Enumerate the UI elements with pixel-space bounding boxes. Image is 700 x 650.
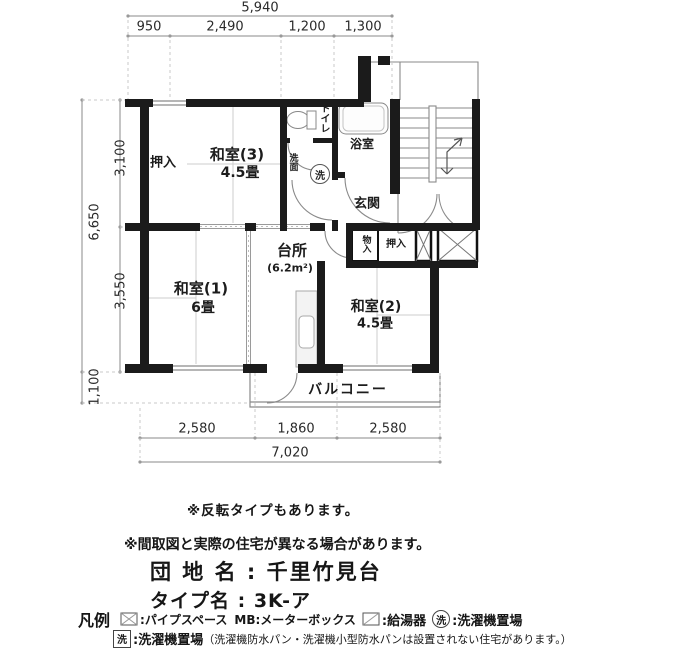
wall — [352, 223, 478, 231]
wall — [378, 56, 390, 65]
dim-bottom-total: 7,020 — [271, 447, 308, 460]
wall — [358, 56, 371, 102]
room-size-washitsu2: 4.5畳 — [357, 318, 393, 331]
dim-top-seg4: 1,300 — [344, 21, 381, 34]
room-label-genkan: 玄関 — [354, 198, 380, 211]
wall — [317, 261, 325, 364]
wall — [332, 172, 345, 178]
wall — [243, 364, 267, 373]
legend-title: 凡例 — [78, 607, 110, 631]
dim-left-total: 6,650 — [89, 203, 102, 240]
wall — [310, 223, 325, 231]
legend-washer-circle-label: :洗濯機置場 — [452, 610, 522, 629]
dim-top-seg1: 950 — [137, 21, 162, 34]
toilet-icon — [287, 112, 309, 129]
estate-name-title: 団 地 名 : 千里竹見台 — [150, 556, 382, 586]
dim-left-seg2: 3,550 — [115, 272, 128, 309]
note-disclaimer: ※間取図と実際の住宅が異なる場合があります。 — [124, 534, 430, 554]
room-size-washitsu3: 4.5畳 — [221, 166, 260, 180]
dim-top-seg2: 2,490 — [206, 21, 243, 34]
wall — [280, 99, 287, 231]
wall — [313, 138, 338, 143]
wall — [472, 99, 480, 230]
wall — [390, 99, 400, 194]
wall — [332, 220, 338, 231]
room-label-oshiire-bottom: 押入 — [386, 240, 406, 250]
legend-pipe-space-label: :パイプスペース — [140, 611, 227, 628]
dim-bottom-seg2: 1,860 — [277, 423, 314, 436]
floorplan-page: 押入 和室(3) 4.5畳 トイレ 浴室 洗面 洗 玄関 台所 (6.2m²) … — [0, 0, 700, 650]
wall — [430, 261, 439, 364]
legend-washer-box-label: :洗濯機置場 — [133, 629, 203, 648]
legend-water-heater-label: :給湯器 — [382, 610, 426, 629]
room-size-kitchen: (6.2m²) — [267, 263, 313, 274]
wall — [125, 364, 173, 373]
room-label-kitchen: 台所 — [277, 244, 307, 259]
wall — [245, 223, 256, 231]
room-size-washitsu1: 6畳 — [191, 301, 215, 315]
legend-washer-box-note: （洗濯機防水パン・洗濯機小型防水パンは設置されない住宅があります。） — [203, 631, 572, 647]
washer-box-icon: 洗 — [113, 630, 131, 648]
water-heater-icon — [362, 612, 380, 626]
wall — [298, 364, 343, 373]
washer-location-mark: 洗 — [310, 164, 330, 184]
room-label-washitsu2: 和室(2) — [351, 300, 402, 314]
room-label-monoire: 物入 — [361, 235, 370, 253]
washer-circle-icon: 洗 — [432, 610, 450, 628]
room-label-oshiire-top: 押入 — [150, 157, 176, 170]
room-label-balcony: バルコニー — [308, 383, 388, 397]
wall — [283, 138, 290, 143]
room-label-washitsu1: 和室(1) — [174, 282, 228, 297]
dim-bottom-seg3: 2,580 — [369, 423, 406, 436]
ps-mb-boxes — [352, 228, 477, 261]
pipe-space-icon — [120, 612, 138, 626]
note-reverse-type: ※反転タイプもあります。 — [187, 499, 359, 519]
room-label-washitsu3: 和室(3) — [210, 148, 264, 163]
room-label-toilet: トイレ — [318, 103, 328, 133]
room-label-senmen: 洗面 — [288, 153, 297, 171]
stairs-up-arrow-icon — [441, 138, 462, 174]
wall — [346, 261, 478, 268]
dim-left-seg3: 1,100 — [89, 368, 102, 405]
dim-bottom-seg1: 2,580 — [178, 423, 215, 436]
wall — [140, 99, 149, 373]
legend-meter-box-label: MB:メーターボックス — [234, 611, 356, 628]
room-label-bath: 浴室 — [350, 138, 374, 150]
bathtub-icon — [339, 103, 388, 134]
legend-row-1: 凡例 :パイプスペース MB:メーターボックス :給湯器 洗 :洗濯機置場 — [78, 607, 522, 631]
wall — [125, 223, 200, 231]
dim-left-seg1: 3,100 — [115, 139, 128, 176]
wall — [412, 364, 439, 373]
dim-top-seg3: 1,200 — [288, 21, 325, 34]
legend-row-2: 洗 :洗濯機置場 （洗濯機防水パン・洗濯機小型防水パンは設置されない住宅がありま… — [113, 629, 572, 648]
dim-top-total: 5,940 — [241, 2, 278, 15]
kitchen-sink-icon — [299, 316, 314, 348]
